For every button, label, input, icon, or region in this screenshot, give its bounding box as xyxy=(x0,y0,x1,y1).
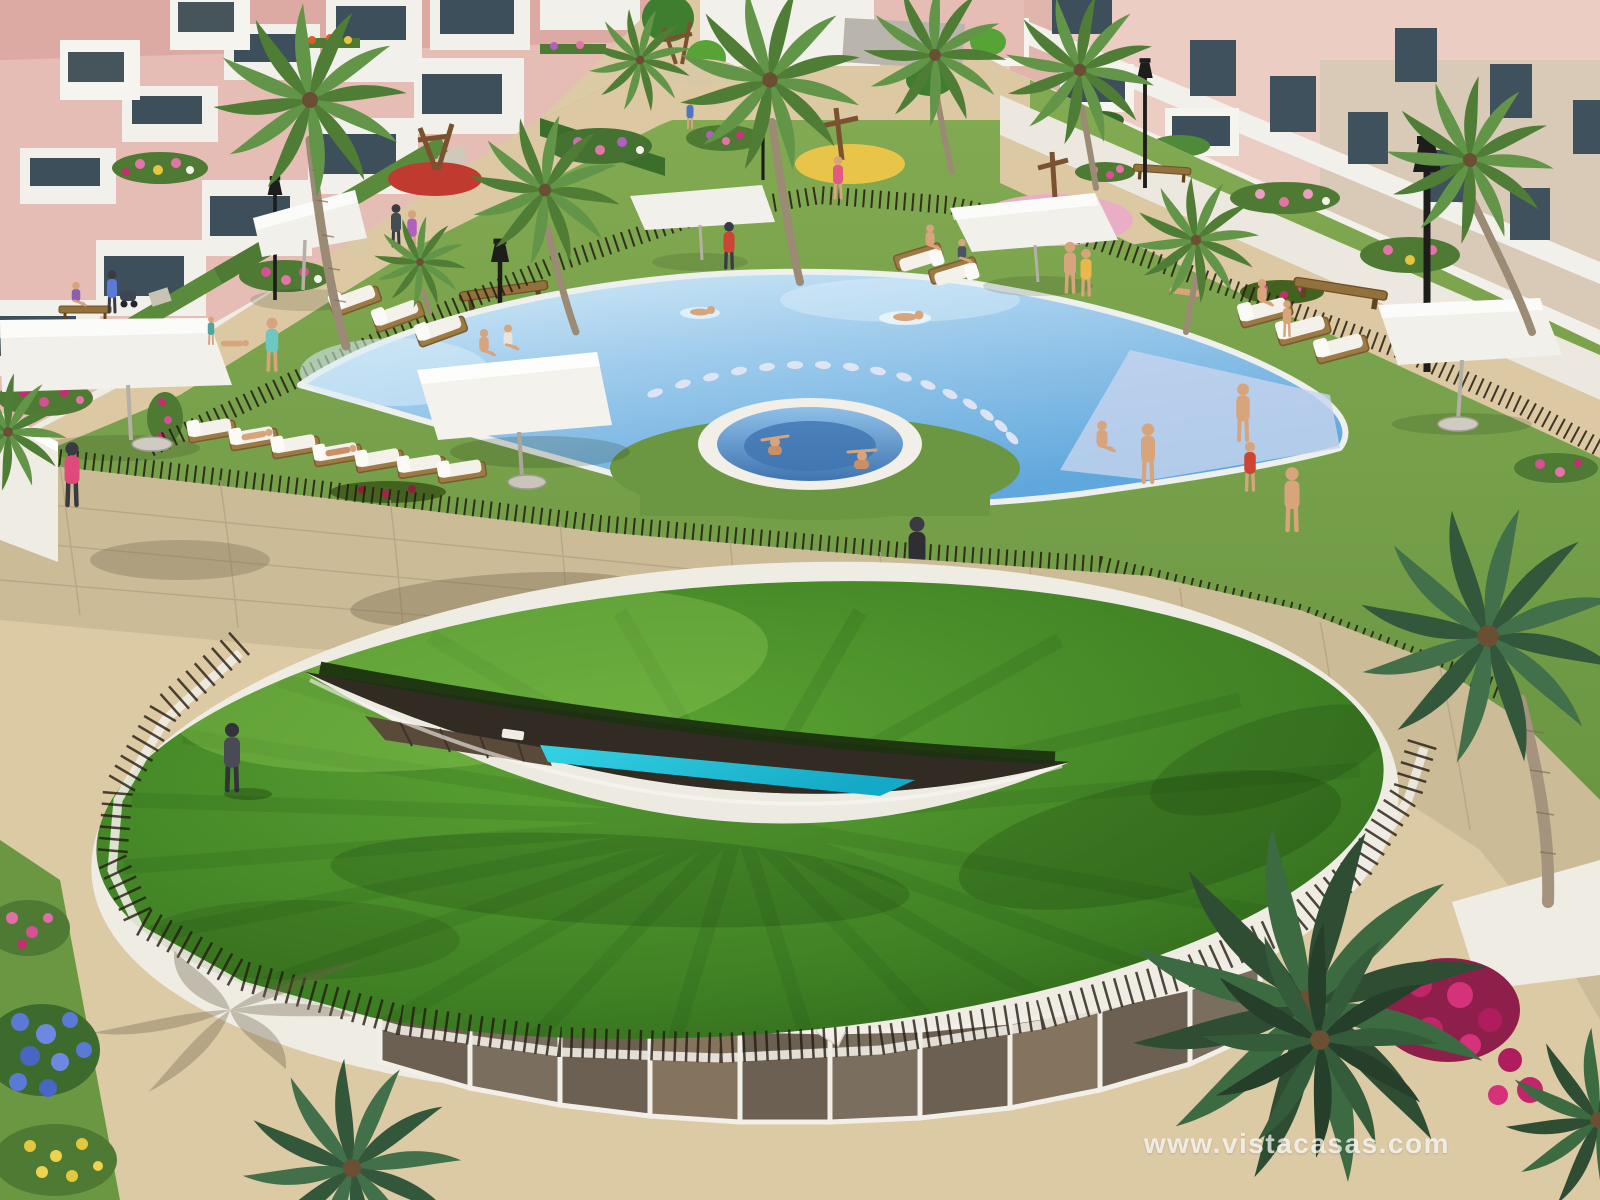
watermark: www.vistacasas.com xyxy=(1144,1128,1450,1160)
scene-canvas xyxy=(0,0,1600,1200)
render-scene: www.vistacasas.com xyxy=(0,0,1600,1200)
spa-pool xyxy=(698,398,922,490)
